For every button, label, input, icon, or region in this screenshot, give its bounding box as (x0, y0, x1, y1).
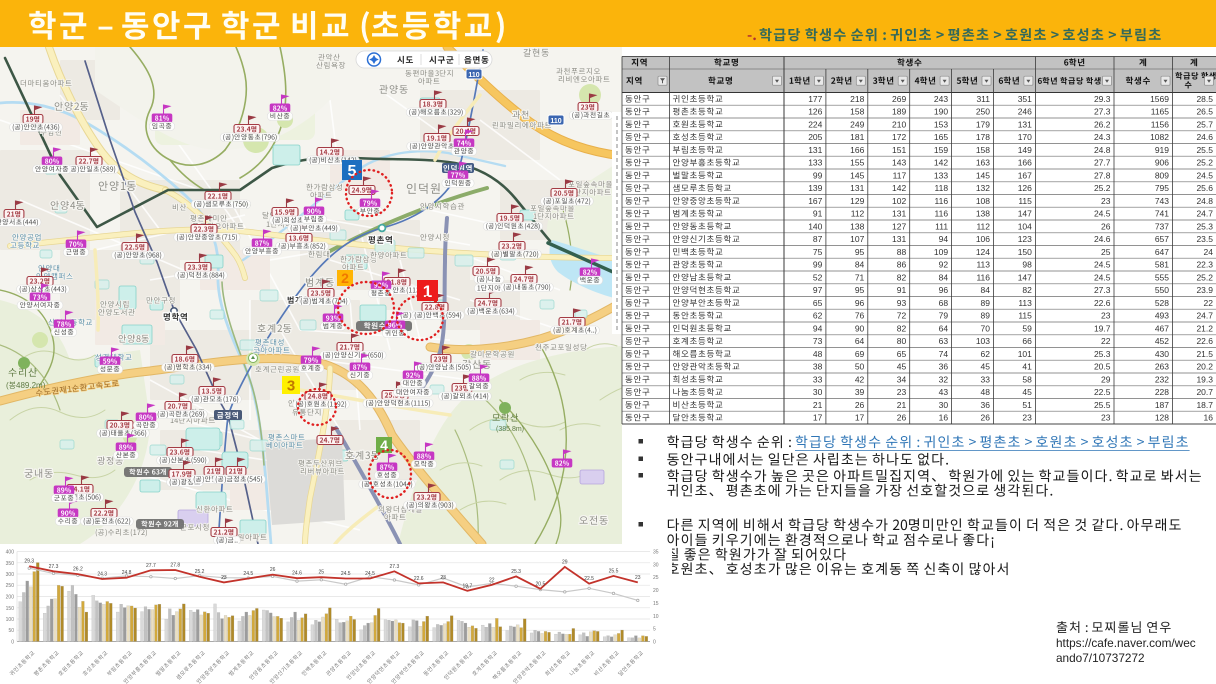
svg-text:95: 95 (855, 285, 865, 295)
svg-text:25.3: 25.3 (1196, 221, 1213, 231)
svg-text:102: 102 (892, 196, 906, 206)
svg-text:32: 32 (939, 374, 949, 384)
svg-text:153: 153 (934, 119, 948, 129)
svg-text:0: 0 (653, 640, 656, 646)
svg-text:82: 82 (897, 272, 907, 282)
svg-text:20: 20 (653, 588, 659, 594)
svg-text:133: 133 (934, 170, 948, 180)
svg-text:131: 131 (808, 145, 822, 155)
svg-text:52: 52 (813, 272, 823, 282)
svg-text:115: 115 (1018, 196, 1032, 206)
svg-text:27.3: 27.3 (390, 564, 400, 570)
svg-text:142: 142 (892, 183, 906, 193)
svg-text:96: 96 (939, 285, 949, 295)
svg-text:250: 250 (6, 583, 15, 589)
svg-text:71: 71 (855, 272, 865, 282)
svg-text:41: 41 (1022, 362, 1032, 372)
svg-text:45: 45 (981, 362, 991, 372)
svg-text:92: 92 (939, 260, 949, 270)
svg-text:26: 26 (897, 413, 907, 423)
svg-text:129: 129 (850, 196, 864, 206)
svg-text:311: 311 (976, 94, 990, 104)
svg-text:142: 142 (934, 158, 948, 168)
svg-text:38: 38 (813, 362, 823, 372)
svg-text:29: 29 (1101, 374, 1111, 384)
svg-text:27.3: 27.3 (1094, 285, 1111, 295)
svg-text:29.3: 29.3 (24, 559, 34, 565)
svg-text:22.6: 22.6 (1094, 298, 1111, 308)
svg-text:23: 23 (1101, 413, 1111, 423)
svg-text:263: 263 (1155, 362, 1169, 372)
svg-text:210: 210 (892, 119, 906, 129)
svg-text:48: 48 (813, 349, 823, 359)
svg-text:97: 97 (813, 285, 823, 295)
svg-text:351: 351 (1018, 94, 1032, 104)
svg-text:200: 200 (6, 595, 15, 601)
svg-text:26.5: 26.5 (1196, 107, 1213, 117)
svg-text:145: 145 (976, 170, 990, 180)
svg-text:25: 25 (319, 570, 325, 576)
svg-text:84: 84 (981, 285, 991, 295)
svg-text:166: 166 (850, 145, 864, 155)
svg-text:143: 143 (892, 158, 906, 168)
svg-text:24.7: 24.7 (1196, 209, 1213, 219)
svg-text:33: 33 (813, 374, 823, 384)
svg-text:224: 224 (808, 119, 822, 129)
svg-text:117: 117 (893, 170, 907, 180)
svg-text:167: 167 (808, 196, 822, 206)
svg-text:20.7: 20.7 (1196, 387, 1213, 397)
svg-text:113: 113 (1018, 298, 1032, 308)
svg-text:150: 150 (6, 606, 15, 612)
svg-text:59: 59 (1022, 323, 1032, 333)
svg-text:17: 17 (855, 413, 865, 423)
svg-text:145: 145 (850, 170, 864, 180)
svg-text:72: 72 (897, 311, 907, 321)
svg-text:115: 115 (1018, 311, 1032, 321)
svg-text:131: 131 (850, 183, 864, 193)
svg-text:809: 809 (1155, 170, 1169, 180)
svg-text:919: 919 (1155, 145, 1169, 155)
svg-text:25.7: 25.7 (1196, 119, 1213, 129)
svg-text:249: 249 (850, 119, 864, 129)
svg-text:26: 26 (270, 567, 276, 573)
svg-text:647: 647 (1155, 247, 1169, 257)
svg-text:110: 110 (550, 118, 561, 125)
svg-text:24.8: 24.8 (1094, 145, 1111, 155)
svg-text:138: 138 (976, 209, 990, 219)
svg-text:906: 906 (1155, 158, 1169, 168)
svg-text:159: 159 (934, 145, 948, 155)
svg-text:24.5: 24.5 (243, 571, 253, 577)
svg-text:243: 243 (934, 94, 948, 104)
svg-text:123: 123 (1018, 234, 1032, 244)
svg-text:24.5: 24.5 (1094, 260, 1111, 270)
svg-text:75: 75 (813, 247, 823, 257)
svg-text:62: 62 (981, 349, 991, 359)
svg-text:20.5: 20.5 (1094, 362, 1111, 372)
svg-text:84: 84 (855, 260, 865, 270)
svg-text:139: 139 (808, 183, 822, 193)
svg-text:23.9: 23.9 (1196, 285, 1213, 295)
svg-text:24.7: 24.7 (1196, 311, 1213, 321)
svg-text:147: 147 (1018, 272, 1032, 282)
svg-text:ando7/10737272: ando7/10737272 (1056, 651, 1145, 665)
svg-text:1569: 1569 (1150, 94, 1169, 104)
svg-text:172: 172 (892, 132, 906, 142)
svg-text:187: 187 (1155, 400, 1169, 410)
svg-text:116: 116 (935, 209, 949, 219)
svg-text:24.6: 24.6 (1196, 132, 1213, 142)
svg-text:94: 94 (939, 234, 949, 244)
svg-text:80: 80 (897, 336, 907, 346)
svg-text:743: 743 (1155, 196, 1169, 206)
svg-text:131: 131 (892, 234, 906, 244)
svg-text:99: 99 (813, 260, 823, 270)
svg-text:36: 36 (981, 400, 991, 410)
svg-text:25: 25 (1101, 247, 1111, 257)
svg-text:30: 30 (939, 400, 949, 410)
svg-text:528: 528 (1155, 298, 1169, 308)
svg-text:189: 189 (892, 107, 906, 117)
svg-text:124: 124 (976, 247, 990, 257)
svg-text:24.5: 24.5 (365, 571, 375, 577)
svg-text:33: 33 (981, 374, 991, 384)
svg-text:26.2: 26.2 (73, 567, 83, 573)
svg-text:22: 22 (1204, 298, 1214, 308)
svg-text:155: 155 (850, 158, 864, 168)
svg-text:27.8: 27.8 (170, 563, 180, 569)
svg-text:(385.8m): (385.8m) (496, 426, 524, 433)
svg-text:133: 133 (808, 158, 822, 168)
svg-text:250: 250 (976, 107, 990, 117)
svg-text:79: 79 (939, 311, 949, 321)
svg-text:50: 50 (8, 628, 14, 634)
svg-text:27.7: 27.7 (1094, 158, 1111, 168)
svg-text:218: 218 (850, 94, 864, 104)
svg-text:555: 555 (1155, 272, 1169, 282)
svg-text:166: 166 (1018, 158, 1032, 168)
svg-text:29.3: 29.3 (1094, 94, 1111, 104)
svg-text:45: 45 (897, 362, 907, 372)
svg-text:22: 22 (1101, 336, 1111, 346)
svg-text:116: 116 (976, 272, 990, 282)
svg-text:25.2: 25.2 (195, 569, 205, 575)
svg-text:63: 63 (939, 336, 949, 346)
svg-text:30: 30 (653, 562, 659, 568)
svg-text:21.2: 21.2 (1196, 323, 1213, 333)
svg-text:149: 149 (1018, 145, 1032, 155)
svg-text:657: 657 (1155, 234, 1169, 244)
svg-text:74: 74 (939, 349, 949, 359)
svg-text:132: 132 (976, 183, 990, 193)
svg-text:20.5: 20.5 (536, 581, 546, 587)
svg-text:19.7: 19.7 (463, 583, 473, 589)
svg-text:741: 741 (1155, 209, 1169, 219)
svg-text:228: 228 (1155, 387, 1169, 397)
svg-text:25.2: 25.2 (1196, 158, 1213, 168)
svg-text:111: 111 (935, 221, 948, 231)
svg-text:34: 34 (897, 374, 907, 384)
svg-text:24.5: 24.5 (1094, 272, 1111, 282)
svg-text:26: 26 (1101, 221, 1111, 231)
svg-text:66: 66 (1022, 336, 1032, 346)
svg-text:467: 467 (1155, 323, 1169, 333)
svg-text:107: 107 (850, 234, 864, 244)
svg-text:128: 128 (1155, 413, 1169, 423)
svg-text:100: 100 (6, 617, 15, 623)
svg-text:24.3: 24.3 (1094, 132, 1111, 142)
svg-text:493: 493 (1155, 311, 1169, 321)
svg-text:108: 108 (976, 196, 990, 206)
svg-text:10: 10 (653, 614, 659, 620)
svg-text:795: 795 (1155, 183, 1169, 193)
svg-text:205: 205 (808, 132, 822, 142)
svg-text:1082: 1082 (1150, 132, 1169, 142)
svg-text:269: 269 (892, 94, 906, 104)
svg-text:30: 30 (813, 387, 823, 397)
svg-text:126: 126 (808, 107, 822, 117)
svg-text:18.7: 18.7 (1196, 400, 1213, 410)
svg-text:170: 170 (1018, 132, 1032, 142)
svg-text:95: 95 (855, 247, 865, 257)
svg-text:131: 131 (1018, 119, 1032, 129)
svg-text:82: 82 (1022, 285, 1032, 295)
svg-text:19.3: 19.3 (1196, 374, 1213, 384)
svg-text:246: 246 (1018, 107, 1032, 117)
svg-text:158: 158 (850, 107, 864, 117)
svg-text:36: 36 (939, 362, 949, 372)
svg-text:89: 89 (981, 311, 991, 321)
svg-text:23: 23 (440, 575, 446, 581)
svg-text:22: 22 (489, 577, 495, 583)
svg-text:106: 106 (976, 234, 990, 244)
svg-text:101: 101 (1018, 349, 1032, 359)
svg-text:350: 350 (6, 561, 15, 567)
svg-text:24.5: 24.5 (1196, 170, 1213, 180)
svg-text:68: 68 (939, 298, 949, 308)
svg-text:25.6: 25.6 (1196, 183, 1213, 193)
svg-text:138: 138 (850, 221, 864, 231)
svg-text:23: 23 (635, 575, 641, 581)
svg-text:24.6: 24.6 (1094, 234, 1111, 244)
svg-text:27.7: 27.7 (146, 563, 156, 569)
svg-text:65: 65 (813, 298, 823, 308)
svg-text:22.6: 22.6 (414, 576, 424, 582)
svg-text:116: 116 (935, 196, 949, 206)
svg-text:51: 51 (1022, 400, 1032, 410)
svg-text:89: 89 (981, 298, 991, 308)
svg-text:https://cafe.naver.com/wec: https://cafe.naver.com/wec (1056, 636, 1196, 650)
svg-text:23: 23 (221, 575, 227, 581)
svg-text:29: 29 (562, 559, 568, 565)
svg-text:24: 24 (1204, 247, 1214, 257)
svg-text:400: 400 (6, 550, 15, 556)
svg-text:27.3: 27.3 (1094, 107, 1111, 117)
svg-text:25.2: 25.2 (1094, 183, 1111, 193)
svg-text:28.5: 28.5 (1196, 94, 1213, 104)
svg-text:19.7: 19.7 (1094, 323, 1111, 333)
svg-text:39: 39 (855, 387, 865, 397)
svg-text:150: 150 (1018, 247, 1032, 257)
svg-text:88: 88 (897, 247, 907, 257)
svg-text:25.5: 25.5 (1094, 400, 1111, 410)
svg-text:1165: 1165 (1151, 107, 1170, 117)
svg-text:17: 17 (813, 413, 823, 423)
svg-text:42: 42 (855, 374, 865, 384)
svg-text:550: 550 (1155, 285, 1169, 295)
svg-text:24.8: 24.8 (1196, 196, 1213, 206)
svg-text:96: 96 (855, 298, 865, 308)
svg-text:147: 147 (1018, 209, 1032, 219)
svg-text:15: 15 (653, 601, 659, 607)
svg-text:112: 112 (976, 221, 990, 231)
svg-text:25.5: 25.5 (1196, 145, 1213, 155)
svg-text:84: 84 (939, 272, 949, 282)
svg-text:103: 103 (976, 336, 990, 346)
svg-text:91: 91 (813, 209, 823, 219)
svg-text:21: 21 (813, 400, 823, 410)
svg-text:62: 62 (813, 311, 823, 321)
svg-text:48: 48 (981, 387, 991, 397)
svg-text:25: 25 (653, 575, 659, 581)
svg-text:165: 165 (934, 132, 948, 142)
svg-text:151: 151 (892, 145, 906, 155)
svg-text:87: 87 (813, 234, 823, 244)
svg-text:64: 64 (939, 323, 949, 333)
svg-text:76: 76 (855, 311, 865, 321)
svg-text:0: 0 (11, 640, 14, 646)
svg-text:24.5: 24.5 (341, 571, 351, 577)
svg-text:99: 99 (813, 170, 823, 180)
svg-text:190: 190 (934, 107, 948, 117)
svg-text:43: 43 (939, 387, 949, 397)
svg-text:25.3: 25.3 (511, 569, 521, 575)
svg-text:2: 2 (341, 270, 349, 286)
svg-text:5: 5 (653, 627, 656, 633)
svg-text:23: 23 (1101, 196, 1111, 206)
svg-text:25.5: 25.5 (609, 568, 619, 574)
svg-text:90: 90 (855, 323, 865, 333)
svg-text:181: 181 (850, 132, 864, 142)
svg-text:24.6: 24.6 (292, 571, 302, 577)
svg-text:16: 16 (1204, 413, 1214, 423)
svg-text:23.5: 23.5 (1196, 234, 1213, 244)
svg-text:58: 58 (1022, 374, 1032, 384)
svg-text:110: 110 (468, 72, 479, 79)
svg-text:23: 23 (1101, 311, 1111, 321)
svg-text:69: 69 (855, 349, 865, 359)
svg-text:26: 26 (981, 413, 991, 423)
svg-text:26.2: 26.2 (1094, 119, 1111, 129)
svg-text:179: 179 (976, 119, 990, 129)
svg-text:1156: 1156 (1151, 119, 1170, 129)
svg-text:86: 86 (897, 260, 907, 270)
svg-text:27.8: 27.8 (1094, 170, 1111, 180)
svg-text:24.5: 24.5 (1094, 209, 1111, 219)
svg-text:35: 35 (653, 550, 659, 556)
svg-text:131: 131 (892, 209, 906, 219)
svg-text:20.2: 20.2 (1196, 362, 1213, 372)
svg-text:21: 21 (897, 400, 907, 410)
svg-text:22.5: 22.5 (584, 576, 594, 582)
svg-text:109: 109 (934, 247, 948, 257)
svg-text:24.3: 24.3 (97, 572, 107, 578)
svg-text:16: 16 (939, 413, 949, 423)
svg-text:65: 65 (897, 349, 907, 359)
svg-text:22.5: 22.5 (1094, 387, 1111, 397)
svg-text:25.2: 25.2 (1196, 272, 1213, 282)
svg-text:27.3: 27.3 (49, 564, 59, 570)
svg-text:113: 113 (976, 260, 990, 270)
svg-text:158: 158 (976, 145, 990, 155)
svg-text:104: 104 (1018, 221, 1032, 231)
svg-text:82: 82 (897, 323, 907, 333)
svg-text:127: 127 (892, 221, 906, 231)
svg-text:50: 50 (855, 362, 865, 372)
svg-text:112: 112 (851, 209, 865, 219)
svg-text:581: 581 (1155, 260, 1169, 270)
svg-text:94: 94 (813, 323, 823, 333)
svg-text:26: 26 (855, 400, 865, 410)
svg-text:70: 70 (981, 323, 991, 333)
svg-text:22.3: 22.3 (1196, 260, 1213, 270)
svg-text:3: 3 (287, 378, 295, 395)
svg-text:22.6: 22.6 (1196, 336, 1213, 346)
svg-text:98: 98 (1022, 260, 1032, 270)
svg-text:232: 232 (1155, 374, 1169, 384)
svg-text:178: 178 (976, 132, 990, 142)
svg-text:25.3: 25.3 (1094, 349, 1111, 359)
svg-text:163: 163 (976, 158, 990, 168)
svg-text:430: 430 (1155, 349, 1169, 359)
svg-text:45: 45 (1022, 387, 1032, 397)
svg-text:737: 737 (1155, 221, 1169, 231)
svg-text:118: 118 (935, 183, 949, 193)
svg-text:140: 140 (808, 221, 822, 231)
svg-text:64: 64 (855, 336, 865, 346)
svg-text:24.8: 24.8 (122, 570, 132, 576)
svg-text:452: 452 (1155, 336, 1169, 346)
svg-text:21.5: 21.5 (1196, 349, 1213, 359)
svg-text:73: 73 (813, 336, 823, 346)
svg-text:91: 91 (897, 285, 907, 295)
svg-text:126: 126 (1018, 183, 1032, 193)
svg-text:23: 23 (897, 387, 907, 397)
svg-text:93: 93 (897, 298, 907, 308)
svg-text:300: 300 (6, 572, 15, 578)
svg-text:177: 177 (808, 94, 822, 104)
svg-text:23: 23 (1022, 413, 1032, 423)
svg-text:167: 167 (1018, 170, 1032, 180)
